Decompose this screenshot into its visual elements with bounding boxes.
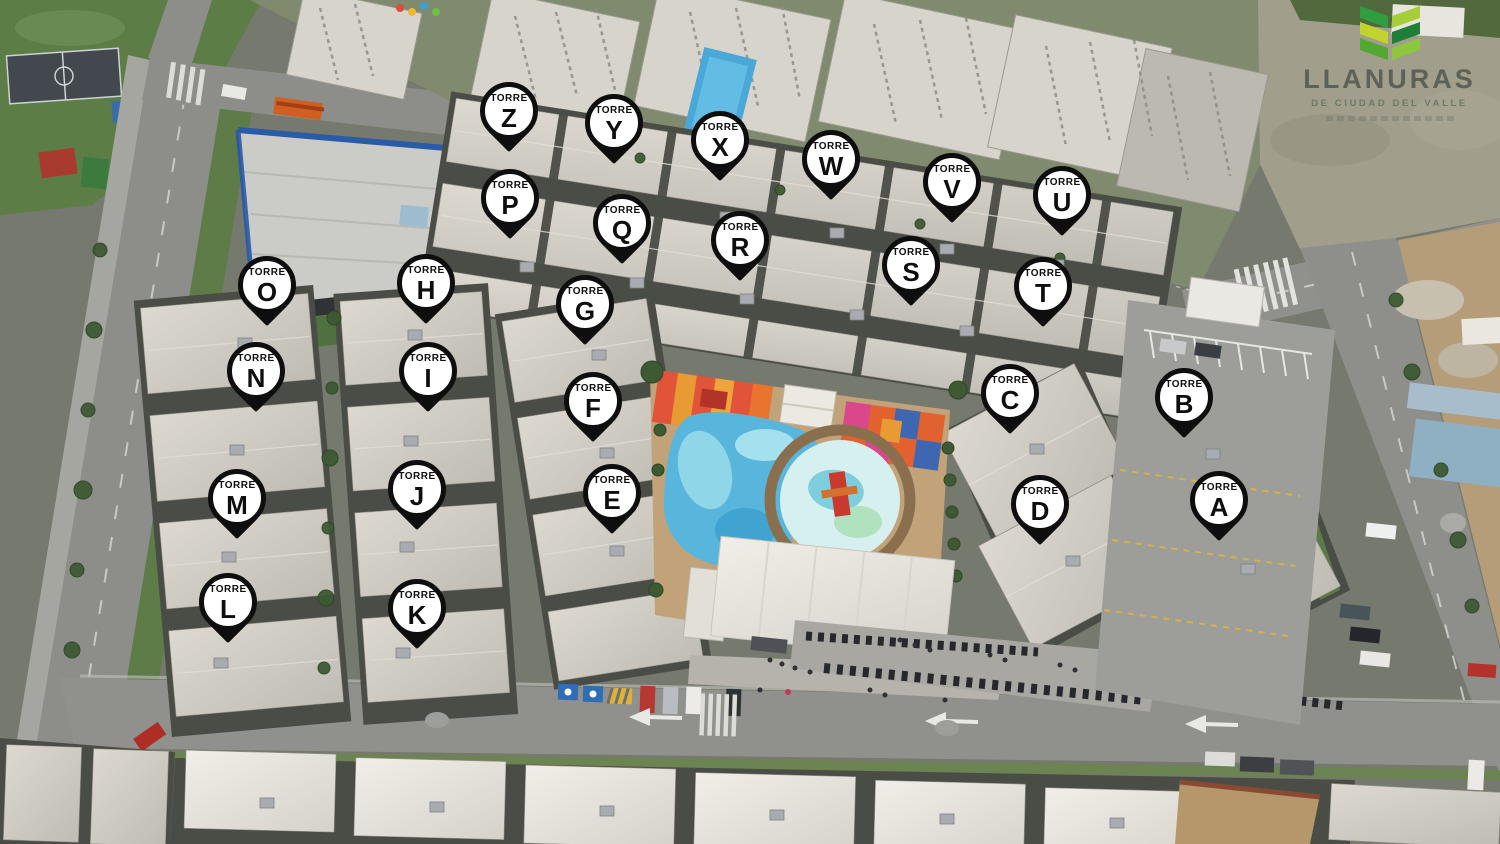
tower-marker-word: TORRE	[237, 354, 274, 364]
tower-marker-word: TORRE	[1024, 269, 1061, 279]
pin-circle: TORRE X	[691, 111, 749, 169]
tower-marker-G[interactable]: TORRE G	[556, 275, 614, 333]
tower-marker-word: TORRE	[593, 476, 630, 486]
pin-circle: TORRE Q	[593, 194, 651, 252]
tower-marker-word: TORRE	[566, 287, 603, 297]
tower-marker-word: TORRE	[701, 123, 738, 133]
brand-fineprint	[1326, 116, 1454, 121]
tower-marker-E[interactable]: TORRE E	[583, 464, 641, 522]
tower-marker-V[interactable]: TORRE V	[923, 153, 981, 211]
pin-circle: TORRE W	[802, 130, 860, 188]
pin-circle: TORRE I	[399, 342, 457, 400]
tower-marker-letter: Y	[605, 117, 622, 143]
pin-circle: TORRE B	[1155, 368, 1213, 426]
tower-marker-word: TORRE	[248, 268, 285, 278]
tower-marker-I[interactable]: TORRE I	[399, 342, 457, 400]
tower-marker-Y[interactable]: TORRE Y	[585, 94, 643, 152]
pin-circle: TORRE S	[882, 236, 940, 294]
tower-marker-word: TORRE	[490, 94, 527, 104]
tower-marker-letter: W	[819, 153, 844, 179]
tower-marker-M[interactable]: TORRE M	[208, 469, 266, 527]
tower-marker-word: TORRE	[491, 181, 528, 191]
pin-circle: TORRE M	[208, 469, 266, 527]
brand-name: LLANURAS	[1302, 64, 1477, 95]
tower-marker-letter: K	[408, 602, 427, 628]
tower-marker-W[interactable]: TORRE W	[802, 130, 860, 188]
brand-logo: LLANURAS DE CIUDAD DEL VALLE	[1302, 4, 1477, 121]
tower-marker-letter: A	[1210, 494, 1229, 520]
tower-marker-letter: E	[603, 487, 620, 513]
site-map: TORRE A TORRE B TORRE C TORRE D	[0, 0, 1500, 844]
tower-marker-Q[interactable]: TORRE Q	[593, 194, 651, 252]
tower-markers: TORRE A TORRE B TORRE C TORRE D	[0, 0, 1500, 844]
tower-marker-T[interactable]: TORRE T	[1014, 257, 1072, 315]
pin-circle: TORRE G	[556, 275, 614, 333]
tower-marker-letter: P	[501, 192, 518, 218]
pin-circle: TORRE Z	[480, 82, 538, 140]
tower-marker-word: TORRE	[574, 384, 611, 394]
tower-marker-word: TORRE	[398, 591, 435, 601]
pin-circle: TORRE O	[238, 256, 296, 314]
pin-circle: TORRE K	[388, 579, 446, 637]
tower-marker-letter: C	[1001, 387, 1020, 413]
tower-marker-letter: R	[731, 234, 750, 260]
tower-marker-word: TORRE	[603, 206, 640, 216]
tower-marker-word: TORRE	[892, 248, 929, 258]
tower-marker-letter: O	[257, 279, 277, 305]
tower-marker-word: TORRE	[218, 481, 255, 491]
pin-circle: TORRE J	[388, 460, 446, 518]
tower-marker-word: TORRE	[1165, 380, 1202, 390]
tower-marker-letter: Q	[612, 217, 632, 243]
tower-marker-letter: Z	[501, 105, 517, 131]
tower-marker-letter: G	[575, 298, 595, 324]
tower-marker-letter: I	[424, 365, 431, 391]
tower-marker-word: TORRE	[721, 223, 758, 233]
tower-marker-letter: M	[226, 492, 248, 518]
tower-marker-word: TORRE	[595, 106, 632, 116]
tower-marker-N[interactable]: TORRE N	[227, 342, 285, 400]
tower-marker-P[interactable]: TORRE P	[481, 169, 539, 227]
tower-marker-word: TORRE	[398, 472, 435, 482]
tower-marker-J[interactable]: TORRE J	[388, 460, 446, 518]
tower-marker-word: TORRE	[812, 142, 849, 152]
pin-circle: TORRE V	[923, 153, 981, 211]
tower-marker-A[interactable]: TORRE A	[1190, 471, 1248, 529]
pin-circle: TORRE P	[481, 169, 539, 227]
pin-circle: TORRE N	[227, 342, 285, 400]
pin-circle: TORRE L	[199, 573, 257, 631]
tower-marker-C[interactable]: TORRE C	[981, 364, 1039, 422]
pin-circle: TORRE E	[583, 464, 641, 522]
tower-marker-letter: H	[417, 277, 436, 303]
pin-circle: TORRE A	[1190, 471, 1248, 529]
tower-marker-letter: S	[902, 259, 919, 285]
tower-marker-word: TORRE	[991, 376, 1028, 386]
pin-circle: TORRE H	[397, 254, 455, 312]
tower-marker-K[interactable]: TORRE K	[388, 579, 446, 637]
tower-marker-letter: X	[711, 134, 728, 160]
tower-marker-letter: U	[1053, 189, 1072, 215]
tower-marker-H[interactable]: TORRE H	[397, 254, 455, 312]
pin-circle: TORRE F	[564, 372, 622, 430]
tower-marker-letter: T	[1035, 280, 1051, 306]
tower-marker-B[interactable]: TORRE B	[1155, 368, 1213, 426]
tower-marker-letter: D	[1031, 498, 1050, 524]
tower-marker-letter: N	[247, 365, 266, 391]
pin-circle: TORRE T	[1014, 257, 1072, 315]
tower-marker-letter: J	[410, 483, 424, 509]
pin-circle: TORRE R	[711, 211, 769, 269]
tower-marker-letter: B	[1175, 391, 1194, 417]
tower-marker-word: TORRE	[1021, 487, 1058, 497]
pin-circle: TORRE U	[1033, 166, 1091, 224]
tower-marker-X[interactable]: TORRE X	[691, 111, 749, 169]
tower-marker-word: TORRE	[407, 266, 444, 276]
brand-tagline: DE CIUDAD DEL VALLE	[1302, 98, 1477, 109]
tower-marker-F[interactable]: TORRE F	[564, 372, 622, 430]
llanuras-leaves-icon	[1358, 4, 1422, 62]
tower-marker-word: TORRE	[933, 165, 970, 175]
pin-circle: TORRE D	[1011, 475, 1069, 533]
tower-marker-U[interactable]: TORRE U	[1033, 166, 1091, 224]
pin-circle: TORRE C	[981, 364, 1039, 422]
tower-marker-D[interactable]: TORRE D	[1011, 475, 1069, 533]
tower-marker-word: TORRE	[1200, 483, 1237, 493]
tower-marker-word: TORRE	[409, 354, 446, 364]
tower-marker-letter: F	[585, 395, 601, 421]
tower-marker-letter: V	[943, 176, 960, 202]
tower-marker-O[interactable]: TORRE O	[238, 256, 296, 314]
tower-marker-S[interactable]: TORRE S	[882, 236, 940, 294]
pin-circle: TORRE Y	[585, 94, 643, 152]
tower-marker-letter: L	[220, 596, 236, 622]
tower-marker-L[interactable]: TORRE L	[199, 573, 257, 631]
tower-marker-word: TORRE	[1043, 178, 1080, 188]
tower-marker-word: TORRE	[209, 585, 246, 595]
tower-marker-R[interactable]: TORRE R	[711, 211, 769, 269]
tower-marker-Z[interactable]: TORRE Z	[480, 82, 538, 140]
